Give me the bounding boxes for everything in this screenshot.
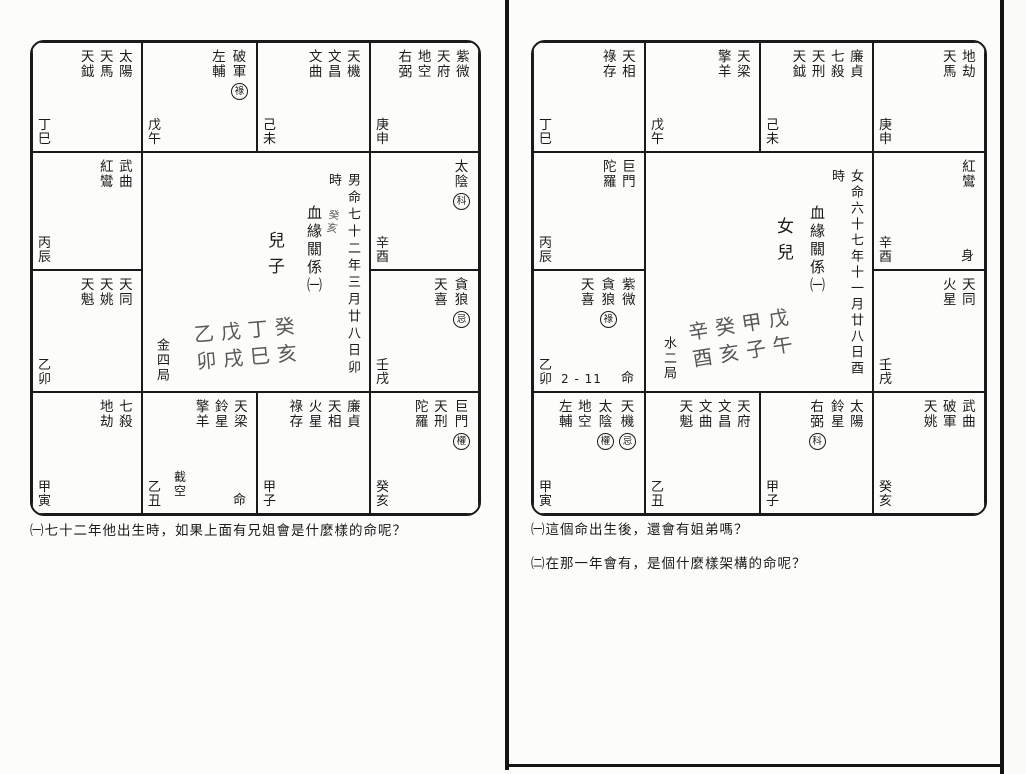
star: 陀羅 [415,400,429,430]
star-name: 天魁 [679,400,693,430]
palace-cell-right-10: 太陽鈴星右弼科甲子 [760,392,873,514]
star-name: 火星 [943,278,957,308]
transform-mark: 權 [597,433,614,450]
branch-label: 庚申 [879,119,893,148]
branch-label: 甲子 [263,481,277,510]
star-name: 貪狼 [601,278,615,308]
bureau-label: 水二局 [659,336,678,381]
star: 廉貞 [850,50,864,80]
branch-label: 己未 [766,119,780,148]
star-name: 天馬 [100,50,114,80]
branch-label: 癸亥 [376,481,390,510]
palace-cell-left-0: 太陽天馬天鉞丁巳 [32,42,142,152]
handwritten-pillars: 乙戊丁癸 卯戌巳亥 [193,312,305,375]
star-name: 天機 [347,50,361,80]
star: 地空 [578,400,592,430]
page-right-edge-line [1000,0,1004,774]
branch-label: 乙卯 [38,359,52,388]
star-name: 紅鸞 [100,160,114,190]
branch-label: 甲寅 [38,481,52,510]
palace-cell-left-2: 天機文昌文曲己未 [257,42,370,152]
ziwei-chart-right: 女命六十七年十一月廿八日酉時 血緣關係㈠ 女兒 辛癸甲戊 酉亥子午 水二局 天相… [531,40,987,516]
star-name: 天姚 [100,278,114,308]
star-name: 天同 [119,278,133,308]
star: 天梁 [737,50,751,80]
star: 地劫 [100,400,114,430]
star-list: 天機文昌文曲 [308,50,361,80]
star: 破軍祿 [231,50,248,100]
star: 鈴星 [215,400,229,430]
star-name: 七殺 [119,400,133,430]
star-list: 太陰科 [453,160,470,210]
star: 武曲 [962,400,976,430]
question-line: ㈠七十二年他出生時，如果上面有兄姐會是什麼樣的命呢？ [30,522,480,542]
transform-mark: 祿 [600,311,617,328]
star: 廉貞 [347,400,361,430]
star-list: 地劫天馬 [943,50,976,80]
transform-mark: 權 [453,433,470,450]
branch-label: 丁巳 [539,119,553,148]
star: 天機忌 [619,400,636,450]
cell-extra: 命 [233,489,246,508]
branch-label: 乙丑 [148,481,162,510]
star-name: 地劫 [100,400,114,430]
star-list: 紫微天府地空右弼 [398,50,470,80]
star: 文曲 [308,50,322,80]
relation-title: 血緣關係㈠ [304,205,325,295]
branch-label: 丙辰 [38,237,52,266]
star: 紅鸞 [962,160,976,190]
star-list: 天府文昌文曲天魁 [679,400,751,430]
star-name: 七殺 [831,50,845,80]
star: 天同 [962,278,976,308]
star: 天相 [622,50,636,80]
star: 天喜 [581,278,595,308]
star: 太陽 [850,400,864,430]
palace-cell-left-5: 太陰科辛酉 [370,152,479,270]
star-name: 天魁 [80,278,94,308]
scanned-book-spread: 男命七十二年三月廿八日卯時 癸亥 血緣關係㈠ 兒子 乙戊丁癸 卯戌巳亥 金四局 … [0,0,1026,774]
star: 文昌 [718,400,732,430]
star-name: 右弼 [810,400,824,430]
branch-label: 辛酉 [879,237,893,266]
star-name: 天梁 [234,400,248,430]
star: 文曲 [698,400,712,430]
star-name: 鈴星 [215,400,229,430]
star-name: 擎羊 [718,50,732,80]
relation-subject: 女兒 [771,217,796,269]
star-name: 火星 [308,400,322,430]
palace-cell-left-10: 廉貞天相火星祿存甲子 [257,392,370,514]
star-list: 天梁擎羊 [718,50,751,80]
questions-left: ㈠七十二年他出生時，如果上面有兄姐會是什麼樣的命呢？ [30,522,480,556]
star-name: 紅鸞 [962,160,976,190]
star-name: 天相 [328,400,342,430]
star-list: 太陽鈴星右弼科 [809,400,864,450]
star-list: 貪狼忌天喜 [434,278,470,328]
cell-extra: 命 [621,367,634,386]
star: 右弼科 [809,400,826,450]
star-list: 天機忌太陰權地空左輔 [559,400,636,450]
branch-label: 庚申 [376,119,390,148]
star: 破軍 [943,400,957,430]
star: 文昌 [328,50,342,80]
palace-cell-right-8: 天機忌太陰權地空左輔甲寅 [533,392,645,514]
branch-label: 辛酉 [376,237,390,266]
star-name: 紫微 [456,50,470,80]
transform-mark: 忌 [453,311,470,328]
star-name: 天相 [622,50,636,80]
star-name: 地空 [578,400,592,430]
star-name: 鈴星 [831,400,845,430]
branch-label: 癸亥 [879,481,893,510]
relation-subject: 兒子 [262,231,287,283]
star-name: 貪狼 [454,278,468,308]
star-name: 文曲 [698,400,712,430]
star: 天馬 [943,50,957,80]
star: 七殺 [831,50,845,80]
palace-cell-left-1: 破軍祿左輔戊午 [142,42,257,152]
star-name: 天喜 [581,278,595,308]
branch-label: 戊午 [651,119,665,148]
palace-cell-left-7: 貪狼忌天喜壬戌 [370,270,479,392]
star: 紫微 [622,278,636,308]
star: 太陽 [119,50,133,80]
star: 擎羊 [195,400,209,430]
branch-label: 壬戌 [376,359,390,388]
star: 左輔 [559,400,573,430]
transform-mark: 科 [809,433,826,450]
star-name: 陀羅 [415,400,429,430]
star-list: 廉貞七殺天刑天鉞 [792,50,864,80]
star: 祿存 [603,50,617,80]
star-name: 左輔 [212,50,226,80]
transform-mark: 忌 [619,433,636,450]
star-name: 左輔 [559,400,573,430]
star-name: 文曲 [308,50,322,80]
star-list: 廉貞天相火星祿存 [289,400,361,430]
questions-right: ㈠這個命出生後，還會有姐弟嗎？ ㈡在那一年會有，是個什麼樣架構的命呢？ [531,521,986,588]
star-name: 紫微 [622,278,636,308]
ziwei-chart-left: 男命七十二年三月廿八日卯時 癸亥 血緣關係㈠ 兒子 乙戊丁癸 卯戌巳亥 金四局 … [30,40,481,516]
star: 七殺 [119,400,133,430]
palace-cell-right-4: 巨門陀羅丙辰 [533,152,645,270]
palace-cell-right-5: 紅鸞辛酉身 [873,152,985,270]
star-name: 天府 [437,50,451,80]
star-name: 陀羅 [603,160,617,190]
star: 火星 [943,278,957,308]
cell-extra: 身 [961,245,974,264]
star-name: 廉貞 [347,400,361,430]
star-name: 武曲 [962,400,976,430]
right-page: 女命六十七年十一月廿八日酉時 血緣關係㈠ 女兒 辛癸甲戊 酉亥子午 水二局 天相… [509,0,1000,774]
branch-label: 甲寅 [539,481,553,510]
birth-info-text: 女命六十七年十一月廿八日酉時 [827,169,865,391]
star: 武曲 [119,160,133,190]
star-name: 右弼 [398,50,412,80]
star-name: 文昌 [718,400,732,430]
palace-cell-right-9: 天府文昌文曲天魁乙丑 [645,392,760,514]
star-list: 天同天姚天魁 [80,278,133,308]
star-list: 巨門權天刑陀羅 [415,400,470,450]
palace-cell-left-3: 紫微天府地空右弼庚申 [370,42,479,152]
star-name: 太陰 [454,160,468,190]
star: 天鉞 [80,50,94,80]
star: 天同 [119,278,133,308]
star-name: 破軍 [232,50,246,80]
star-name: 天府 [737,400,751,430]
star: 巨門權 [453,400,470,450]
palace-cell-right-6: 紫微貪狼祿天喜乙卯2 - 11命 [533,270,645,392]
star: 天姚 [923,400,937,430]
star: 天魁 [80,278,94,308]
branch-label: 戊午 [148,119,162,148]
star: 紅鸞 [100,160,114,190]
star: 天魁 [679,400,693,430]
cell-extra: 截空 [174,471,187,499]
star-list: 武曲破軍天姚 [923,400,976,430]
palace-cell-left-9: 天梁鈴星擎羊乙丑截空命 [142,392,257,514]
star: 太陰權 [597,400,614,450]
star: 紫微 [456,50,470,80]
star: 太陰科 [453,160,470,210]
palace-cell-right-7: 天同火星壬戌 [873,270,985,392]
star: 天刑 [811,50,825,80]
star: 陀羅 [603,160,617,190]
transform-mark: 科 [453,193,470,210]
star-name: 天梁 [737,50,751,80]
star: 天梁 [234,400,248,430]
palace-cell-right-3: 地劫天馬庚申 [873,42,985,152]
star-list: 紫微貪狼祿天喜 [581,278,636,328]
star: 擎羊 [718,50,732,80]
star: 祿存 [289,400,303,430]
star-list: 巨門陀羅 [603,160,636,190]
star-list: 紅鸞 [962,160,976,190]
star-name: 天刑 [434,400,448,430]
transform-mark: 祿 [231,83,248,100]
star: 右弼 [398,50,412,80]
star-name: 太陽 [850,400,864,430]
star: 地空 [417,50,431,80]
star: 天相 [328,400,342,430]
branch-label: 己未 [263,119,277,148]
star-name: 天馬 [943,50,957,80]
chart-center-right: 女命六十七年十一月廿八日酉時 血緣關係㈠ 女兒 辛癸甲戊 酉亥子午 水二局 [645,152,873,392]
chart-center-left: 男命七十二年三月廿八日卯時 癸亥 血緣關係㈠ 兒子 乙戊丁癸 卯戌巳亥 金四局 [142,152,370,392]
star-name: 廉貞 [850,50,864,80]
star-name: 天刑 [811,50,825,80]
star-name: 天鉞 [80,50,94,80]
branch-label: 壬戌 [879,359,893,388]
bureau-label: 金四局 [152,338,171,383]
cell-extra: 2 - 11 [561,372,602,386]
palace-cell-left-8: 七殺地劫甲寅 [32,392,142,514]
palace-cell-right-11: 武曲破軍天姚癸亥 [873,392,985,514]
star-list: 七殺地劫 [100,400,133,430]
branch-label: 丙辰 [539,237,553,266]
star-name: 祿存 [603,50,617,80]
question-line: ㈡在那一年會有，是個什麼樣架構的命呢？ [531,555,986,575]
star-name: 天機 [620,400,634,430]
star-name: 天鉞 [792,50,806,80]
handwritten-pillars: 辛癸甲戊 酉亥子午 [686,303,801,373]
relation-title: 血緣關係㈠ [807,205,828,295]
star: 火星 [308,400,322,430]
star: 天機 [347,50,361,80]
star: 左輔 [212,50,226,80]
branch-label: 乙丑 [651,481,665,510]
palace-cell-right-0: 天相祿存丁巳 [533,42,645,152]
star-name: 天同 [962,278,976,308]
star-list: 天梁鈴星擎羊 [195,400,248,430]
star-name: 太陽 [119,50,133,80]
birth-info-text: 男命七十二年三月廿八日卯時 [324,173,362,391]
branch-label: 乙卯 [539,359,553,388]
star-name: 天姚 [923,400,937,430]
star: 巨門 [622,160,636,190]
star: 天姚 [100,278,114,308]
star-name: 天喜 [434,278,448,308]
branch-label: 丁巳 [38,119,52,148]
page-bottom-edge-line [509,764,1004,767]
star-name: 巨門 [622,160,636,190]
branch-label: 甲子 [766,481,780,510]
palace-cell-right-1: 天梁擎羊戊午 [645,42,760,152]
palace-cell-left-11: 巨門權天刑陀羅癸亥 [370,392,479,514]
palace-cell-right-2: 廉貞七殺天刑天鉞己未 [760,42,873,152]
star: 地劫 [962,50,976,80]
star: 天府 [737,400,751,430]
book-gutter-line [505,0,509,770]
star: 鈴星 [831,400,845,430]
star: 貪狼祿 [600,278,617,328]
star-name: 武曲 [119,160,133,190]
question-line: ㈠這個命出生後，還會有姐弟嗎？ [531,521,986,541]
palace-cell-left-4: 武曲紅鸞丙辰 [32,152,142,270]
star-name: 破軍 [943,400,957,430]
star-list: 天相祿存 [603,50,636,80]
palace-cell-left-6: 天同天姚天魁乙卯 [32,270,142,392]
star-name: 太陰 [598,400,612,430]
star: 貪狼忌 [453,278,470,328]
star: 天府 [437,50,451,80]
star-list: 太陽天馬天鉞 [80,50,133,80]
star: 天喜 [434,278,448,308]
star-list: 武曲紅鸞 [100,160,133,190]
star-name: 文昌 [328,50,342,80]
star-name: 祿存 [289,400,303,430]
star: 天馬 [100,50,114,80]
left-page: 男命七十二年三月廿八日卯時 癸亥 血緣關係㈠ 兒子 乙戊丁癸 卯戌巳亥 金四局 … [0,0,505,774]
star-name: 巨門 [454,400,468,430]
star-list: 破軍祿左輔 [212,50,248,100]
star-name: 擎羊 [195,400,209,430]
star-list: 天同火星 [943,278,976,308]
star-name: 地劫 [962,50,976,80]
star-name: 地空 [417,50,431,80]
star: 天鉞 [792,50,806,80]
star: 天刑 [434,400,448,430]
